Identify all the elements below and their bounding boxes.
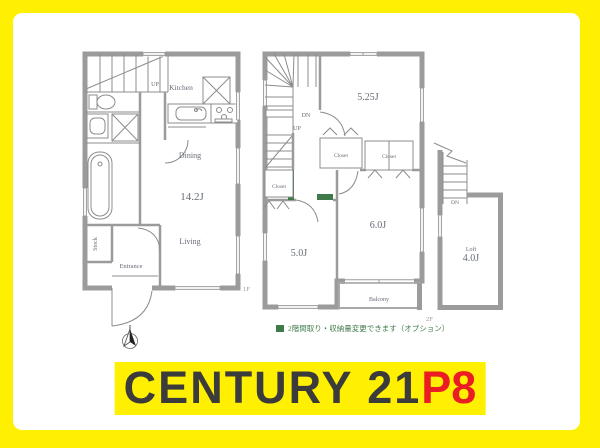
floor-label-1f: 1F <box>243 286 250 293</box>
note-bullet-icon <box>276 325 284 332</box>
room-label-entrance: Entrance <box>119 263 142 270</box>
refrigerator-space-icon <box>203 77 230 104</box>
sink-icon <box>176 107 206 120</box>
door-arc <box>296 200 318 222</box>
dn-label-2f: DN <box>302 113 311 119</box>
option-note: 2階間取り・収納量変更できます（オプション） <box>276 323 449 334</box>
balcony-outline <box>339 283 420 308</box>
floor-label-2f: 2F <box>426 316 433 323</box>
closet-label-a: Closet <box>334 153 349 159</box>
up-label-1f: UP <box>151 82 159 88</box>
area-label-50: 5.0J <box>291 248 308 259</box>
wall <box>85 225 160 288</box>
closet-label-under-stairs: Closet <box>272 184 287 190</box>
entrance-door-arc <box>112 288 152 326</box>
door-arc <box>138 228 160 250</box>
door-arc <box>320 112 345 136</box>
loft-ladder-icon <box>443 152 467 204</box>
room-label-balcony: Balcony <box>369 297 389 303</box>
room-label-living: Living <box>179 237 200 246</box>
room-label-kitchen: Kitchen <box>169 83 193 92</box>
up-label-2f: UP <box>293 126 301 132</box>
optional-wall-green <box>317 194 333 200</box>
balcony-wall-stub <box>417 283 422 310</box>
brand-suffix: P8 <box>421 362 476 413</box>
closet-label-b: Closet <box>382 154 397 160</box>
option-note-text: 2階間取り・収納量変更できます（オプション） <box>288 323 449 334</box>
plan-1f: UP <box>83 52 251 327</box>
closet-b-doors-icon <box>368 170 410 178</box>
room-label-loft: Loft <box>466 246 477 253</box>
area-label-loft: 4.0J <box>463 253 480 264</box>
stairs-2f-icon <box>265 54 316 168</box>
entrance-opening <box>112 285 152 291</box>
dn-label-loft: DN <box>451 200 459 206</box>
brand-name: CENTURY 21 <box>124 362 422 413</box>
area-label-1f: 14.2J <box>180 191 204 203</box>
brand-logo: CENTURY 21P8 <box>115 362 486 415</box>
north-arrow-icon <box>123 325 138 349</box>
door-arc <box>339 171 358 194</box>
toilet-icon <box>89 95 115 109</box>
plan-loft: DN Loft 4.0J <box>434 143 501 308</box>
washer-space-icon <box>112 114 138 141</box>
bathtub-icon <box>88 152 112 219</box>
room-label-stock: Stock <box>93 237 99 251</box>
room-label-dining: Dining <box>179 151 201 160</box>
area-label-60: 6.0J <box>370 220 387 231</box>
vanity-icon <box>87 114 108 138</box>
plan-2f: DN UP 5.25J Closet Closet Closet 6.0J 5.… <box>263 52 434 324</box>
area-label-525: 5.25J <box>357 92 379 103</box>
closet-a-doors-icon <box>323 128 358 135</box>
